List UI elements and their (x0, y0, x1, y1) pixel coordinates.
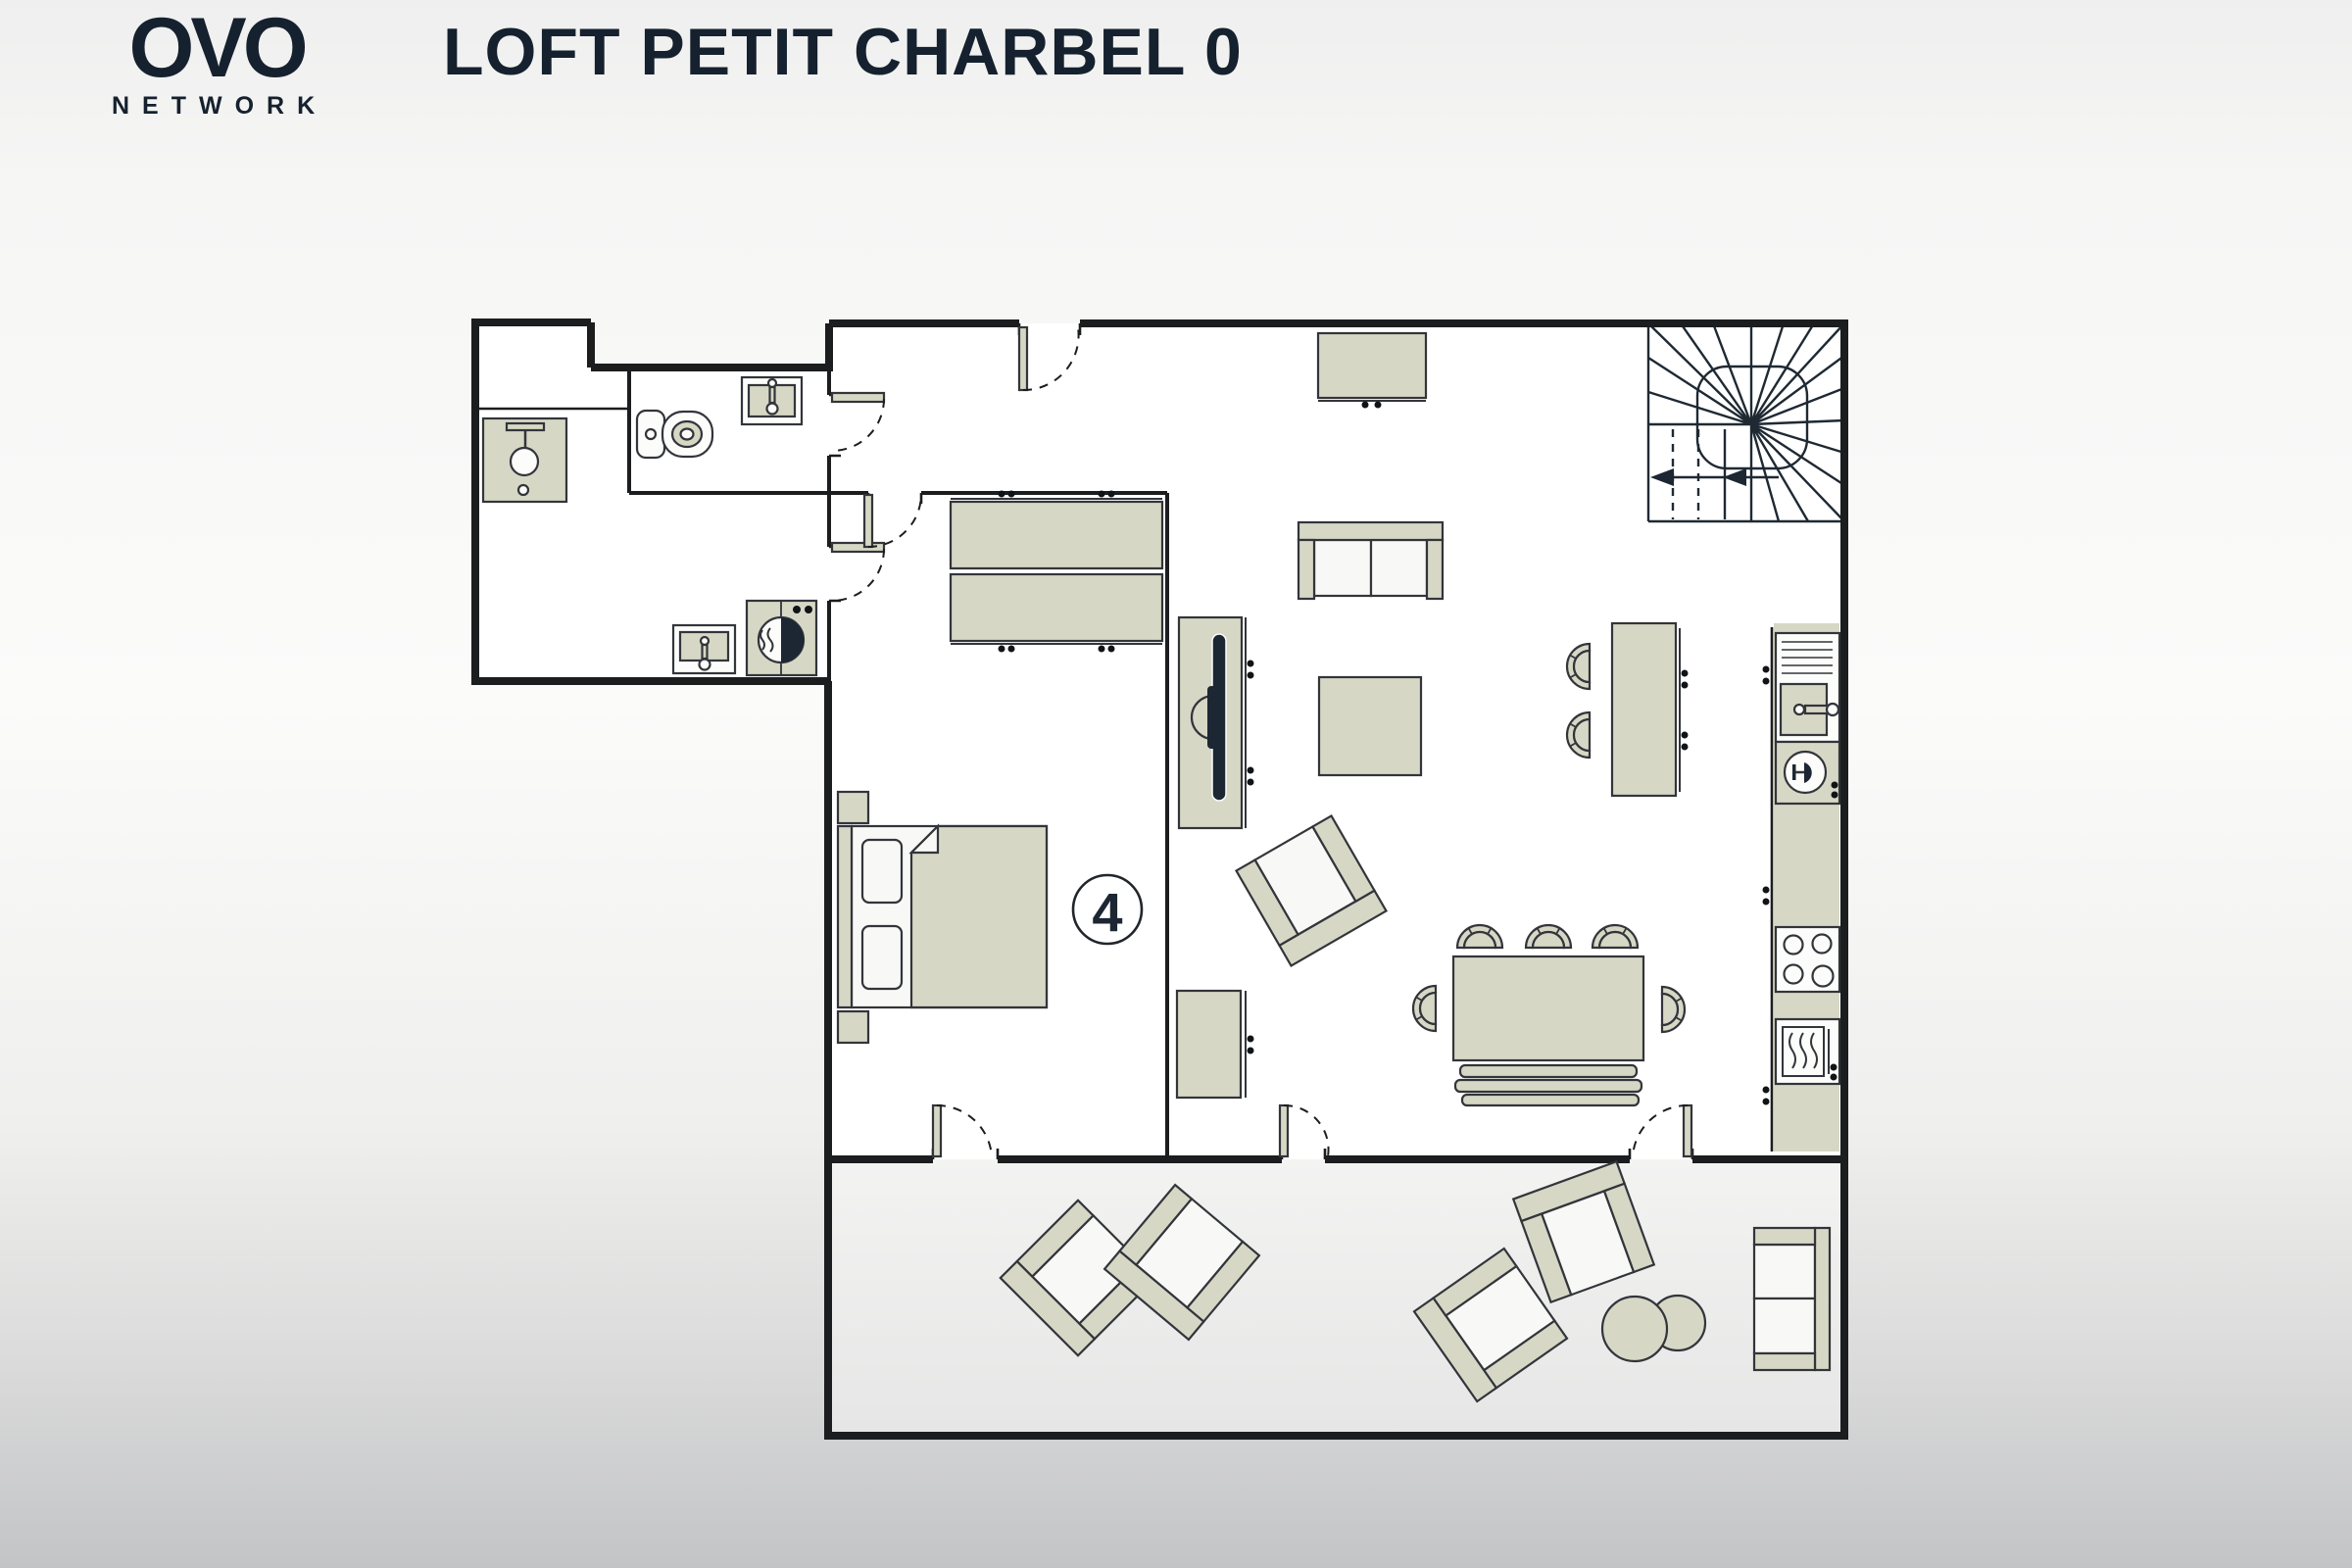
floor-plan: 4 (0, 0, 2352, 1568)
headboard (838, 826, 852, 1007)
faucet-icon (701, 637, 709, 645)
fridge (1776, 633, 1839, 742)
washbasin (742, 377, 802, 424)
shower (483, 418, 566, 502)
oven (1776, 1019, 1839, 1084)
dishwasher (1776, 742, 1839, 804)
dining-table (1453, 956, 1643, 1060)
drain-icon (518, 485, 528, 495)
pillow (862, 840, 902, 903)
faucet-icon (768, 379, 776, 387)
capacity-badge: 4 (1073, 875, 1142, 944)
capacity-number: 4 (1092, 882, 1122, 944)
faucet-icon (1794, 705, 1804, 714)
pouf (1602, 1297, 1667, 1361)
double-bed (838, 826, 1047, 1007)
shower-rail-icon (507, 423, 544, 430)
outdoor-sofa (1754, 1228, 1830, 1370)
hob (1776, 927, 1839, 992)
coffee-table (1319, 677, 1421, 775)
nightstand (838, 792, 868, 823)
toilet (637, 411, 712, 458)
terrace-floor (828, 1159, 1844, 1436)
sofa (1298, 522, 1443, 599)
bar-table (1612, 623, 1689, 796)
shower-head-icon (511, 448, 538, 475)
nightstand (838, 1011, 868, 1043)
sideboard (1318, 333, 1426, 409)
washing-machine (747, 601, 816, 675)
pillow (862, 926, 902, 989)
laundry-sink (673, 625, 735, 673)
bench (1455, 1065, 1641, 1105)
kitchen (1763, 623, 1840, 1151)
